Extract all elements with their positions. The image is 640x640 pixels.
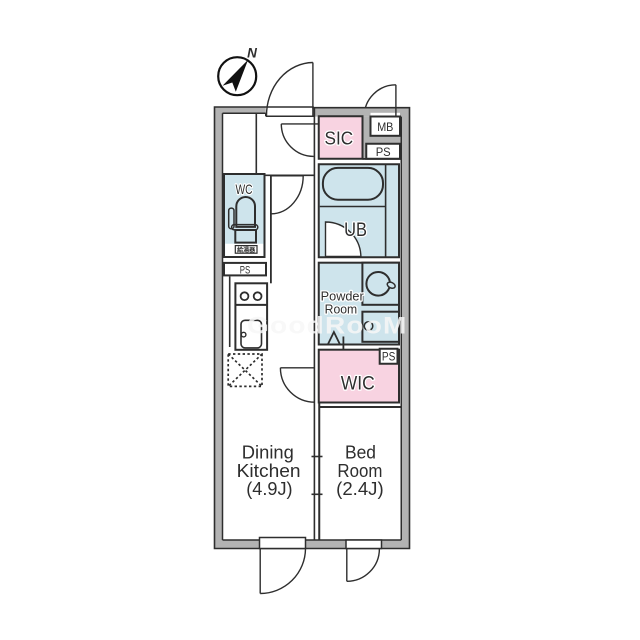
svg-text:PS: PS [376, 145, 391, 159]
svg-text:WC: WC [235, 182, 252, 197]
svg-text:SIC: SIC [325, 128, 354, 149]
svg-text:Powder: Powder [321, 290, 364, 304]
svg-text:PS: PS [382, 352, 396, 364]
svg-text:(2.4J): (2.4J) [336, 478, 384, 499]
svg-text:(4.9J): (4.9J) [246, 478, 292, 499]
svg-text:UB: UB [344, 220, 367, 241]
svg-text:MB: MB [377, 120, 393, 134]
svg-text:GoodRooM: GoodRooM [247, 311, 408, 339]
svg-text:PS: PS [240, 264, 251, 276]
svg-text:N: N [247, 46, 257, 61]
svg-text:WIC: WIC [341, 373, 375, 395]
svg-text:給湯器: 給湯器 [237, 246, 256, 254]
